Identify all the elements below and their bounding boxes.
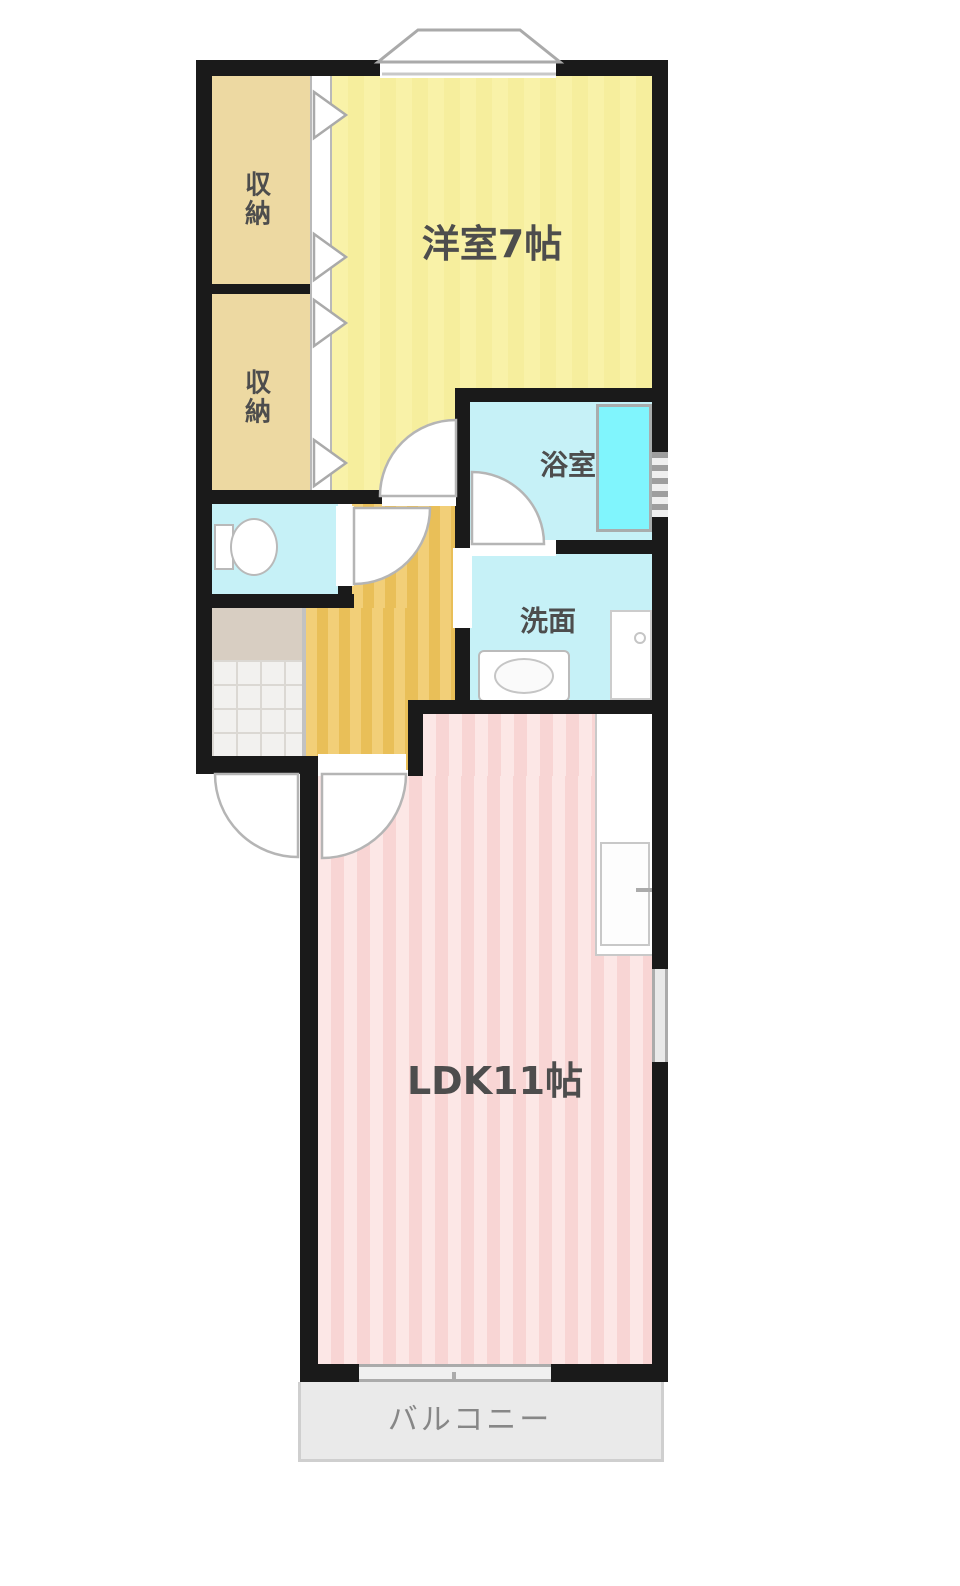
ldk-room-upper bbox=[423, 714, 595, 776]
entrance-door-arc bbox=[215, 774, 298, 857]
wall-bathroom-left bbox=[455, 388, 470, 548]
washing-machine-pan bbox=[610, 610, 652, 700]
wall-toilet-bottom bbox=[196, 594, 354, 608]
bay-window bbox=[378, 30, 560, 62]
wall-closet-divider bbox=[212, 284, 310, 294]
closet-bottom-label: 収 納 bbox=[245, 369, 271, 426]
entrance-step bbox=[212, 608, 302, 660]
kitchen-window bbox=[652, 969, 668, 1062]
wall-right-lower bbox=[652, 1062, 668, 1382]
washroom-label: 洗面 bbox=[520, 607, 576, 638]
kitchen-counter bbox=[600, 842, 650, 946]
wall-top-left bbox=[196, 60, 382, 76]
bathtub bbox=[596, 404, 652, 532]
bay-window-wall-gap bbox=[380, 58, 556, 78]
wall-ldk-bottom-right bbox=[551, 1364, 668, 1382]
bathroom-label: 浴室 bbox=[540, 451, 596, 482]
closet-sliding-track bbox=[310, 76, 332, 490]
wall-left bbox=[196, 60, 212, 774]
wall-right-mid bbox=[652, 517, 668, 969]
floor-plan: 洋室7帖 収 納 収 納 浴室 洗面 LDK11帖 バルコニー bbox=[0, 0, 960, 1586]
wall-ldk-left bbox=[300, 756, 318, 1382]
wall-washroom-bottom bbox=[408, 700, 668, 714]
wall-ldk-notch bbox=[408, 700, 423, 776]
closet-top-label: 収 納 bbox=[245, 171, 271, 228]
bathroom-louver-window bbox=[652, 452, 668, 517]
kitchen-counter-handle bbox=[636, 888, 652, 892]
washing-machine-drain-icon bbox=[634, 632, 646, 644]
wall-bathroom-top bbox=[455, 388, 668, 402]
washbasin-bowl-icon bbox=[494, 658, 554, 694]
wall-closet-bottom bbox=[196, 490, 382, 504]
toilet-bowl-icon bbox=[230, 518, 278, 576]
wall-ldk-bottom-left bbox=[300, 1364, 359, 1382]
hallway-lower bbox=[306, 608, 408, 770]
balcony-sliding-door-latch bbox=[452, 1372, 456, 1382]
entrance-tile-floor bbox=[212, 660, 302, 756]
balcony-label: バルコニー bbox=[388, 1404, 552, 1437]
ldk-label: LDK11帖 bbox=[407, 1061, 583, 1103]
western-room-label: 洋室7帖 bbox=[422, 224, 562, 266]
western-room-lower bbox=[332, 390, 455, 490]
wall-bathroom-bottom bbox=[556, 540, 668, 554]
entrance-hall-divider bbox=[302, 608, 306, 770]
entrance-door-leaf bbox=[212, 756, 302, 774]
